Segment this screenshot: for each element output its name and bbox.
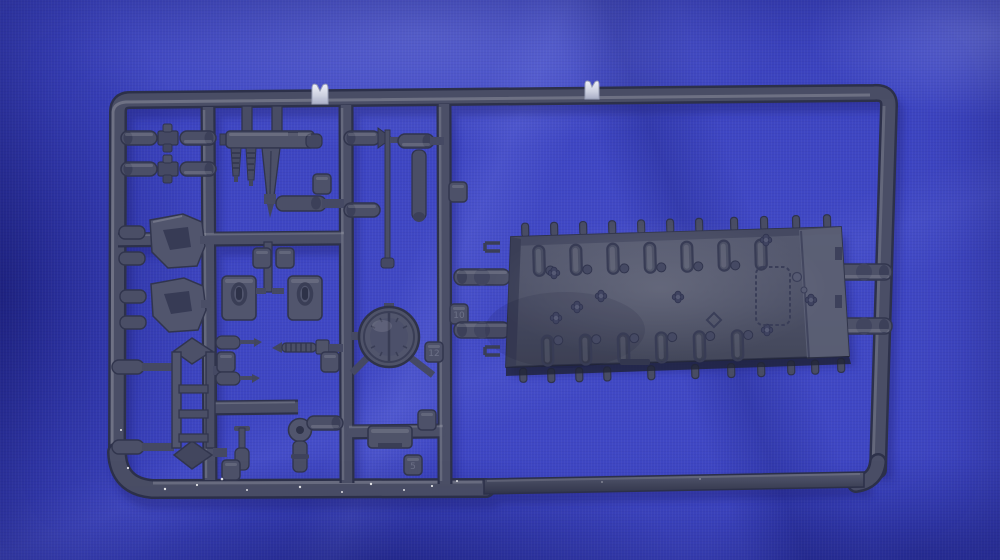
sprue-photo: 10 12 5 <box>0 0 1000 560</box>
photo-vignette <box>0 0 1000 560</box>
